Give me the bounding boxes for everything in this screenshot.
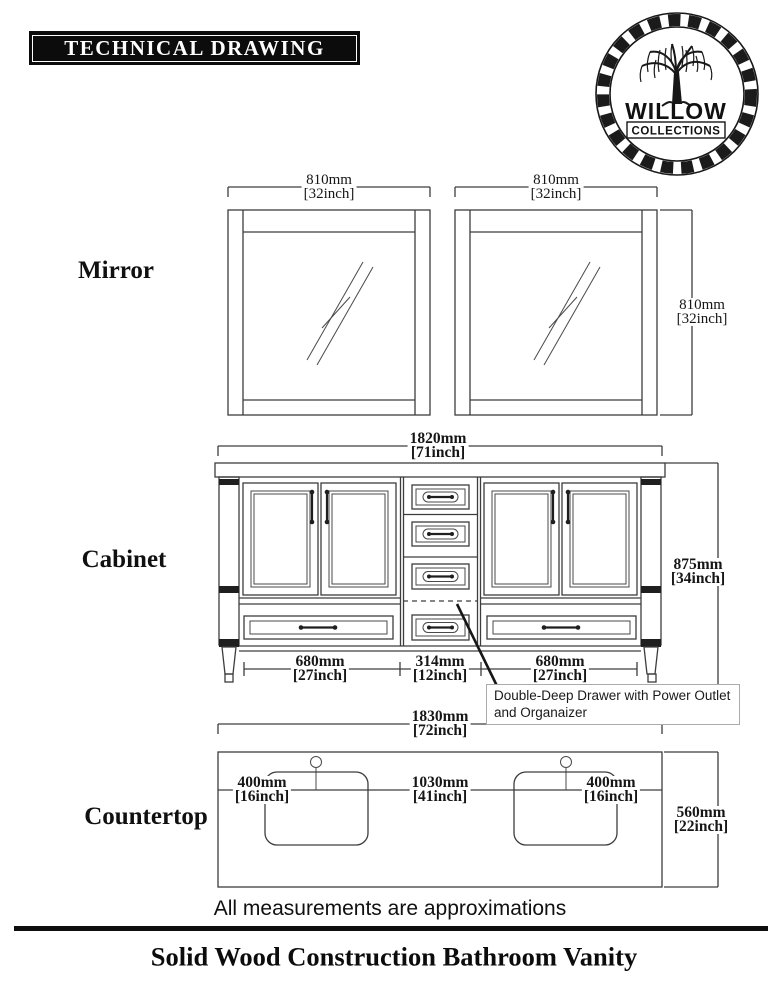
cabinet-door bbox=[484, 483, 559, 595]
countertop-width-dim: 1830mm [72inch] bbox=[410, 710, 471, 738]
technical-drawing-page: TECHNICAL DRAWING bbox=[0, 0, 782, 990]
dim-inch-text: [32inch] bbox=[302, 187, 357, 201]
dim-mm-text: 810mm bbox=[302, 173, 357, 187]
faucet-hole-icon bbox=[561, 757, 572, 768]
section-label-mirror: Mirror bbox=[78, 257, 154, 285]
footer-divider-rule bbox=[14, 926, 768, 931]
section-label-cabinet: Cabinet bbox=[82, 546, 167, 574]
mirror-left-drawing bbox=[228, 210, 430, 415]
countertop-depth-dim: 560mm [22inch] bbox=[672, 806, 730, 834]
dim-inch-text: [34inch] bbox=[669, 572, 727, 586]
logo-name-text: WILLOW bbox=[625, 98, 727, 124]
double-deep-drawer bbox=[412, 615, 469, 640]
cabinet-door bbox=[243, 483, 318, 595]
cabinet-height-dim: 875mm [34inch] bbox=[669, 558, 727, 586]
measurements-note: All measurements are approximations bbox=[214, 897, 567, 921]
cabinet-bottom-dim-center: 314mm [12inch] bbox=[411, 655, 469, 683]
mirror-left-width-dim: 810mm [32inch] bbox=[302, 173, 357, 201]
section-label-countertop: Countertop bbox=[84, 803, 208, 831]
callout-line2: and Organaizer bbox=[494, 705, 732, 722]
cabinet-bottom-dim-left: 680mm [27inch] bbox=[291, 655, 349, 683]
mirror-right-drawing bbox=[455, 210, 657, 415]
dim-inch-text: [32inch] bbox=[675, 312, 730, 326]
dim-inch-text: [27inch] bbox=[291, 669, 349, 683]
bottom-drawer-left bbox=[244, 616, 393, 639]
cabinet-drawing bbox=[215, 463, 665, 682]
logo-subname-text: COLLECTIONS bbox=[631, 126, 720, 138]
dim-inch-text: [41inch] bbox=[410, 790, 471, 804]
double-deep-drawer-callout: Double-Deep Drawer with Power Outlet and… bbox=[486, 684, 740, 725]
dim-inch-text: [12inch] bbox=[411, 669, 469, 683]
dim-mm-text: 810mm bbox=[529, 173, 584, 187]
countertop-inner-dim-center: 1030mm [41inch] bbox=[410, 776, 471, 804]
center-drawer bbox=[412, 522, 469, 546]
page-title: TECHNICAL DRAWING bbox=[32, 35, 357, 62]
dim-inch-text: [22inch] bbox=[672, 820, 730, 834]
dim-mm-text: 810mm bbox=[675, 298, 730, 312]
bottom-drawer-right bbox=[487, 616, 636, 639]
faucet-hole-icon bbox=[311, 757, 322, 768]
mirror-right-width-dim: 810mm [32inch] bbox=[529, 173, 584, 201]
countertop-inner-dim-right: 400mm [16inch] bbox=[582, 776, 640, 804]
countertop-inner-dim-left: 400mm [16inch] bbox=[233, 776, 291, 804]
dim-inch-text: [27inch] bbox=[531, 669, 589, 683]
countertop-dimension-lines bbox=[218, 724, 718, 887]
countertop-drawing bbox=[218, 752, 662, 887]
callout-line1: Double-Deep Drawer with Power Outlet bbox=[494, 688, 732, 705]
mirror-dimension-lines bbox=[228, 187, 692, 415]
willow-tree-icon bbox=[640, 44, 712, 106]
dim-inch-text: [32inch] bbox=[529, 187, 584, 201]
cabinet-door bbox=[321, 483, 396, 595]
center-drawer bbox=[412, 485, 469, 509]
dim-inch-text: [72inch] bbox=[410, 724, 471, 738]
cabinet-door bbox=[562, 483, 637, 595]
cabinet-bottom-dim-right: 680mm [27inch] bbox=[531, 655, 589, 683]
dim-inch-text: [71inch] bbox=[408, 446, 469, 460]
cabinet-width-dim: 1820mm [71inch] bbox=[408, 432, 469, 460]
mirror-height-dim: 810mm [32inch] bbox=[675, 298, 730, 326]
willow-collections-logo: WILLOW COLLECTIONS bbox=[594, 10, 766, 178]
dim-inch-text: [16inch] bbox=[582, 790, 640, 804]
footer-title: Solid Wood Construction Bathroom Vanity bbox=[151, 942, 637, 973]
page-title-box: TECHNICAL DRAWING bbox=[29, 31, 360, 65]
center-drawer bbox=[412, 564, 469, 589]
dim-inch-text: [16inch] bbox=[233, 790, 291, 804]
